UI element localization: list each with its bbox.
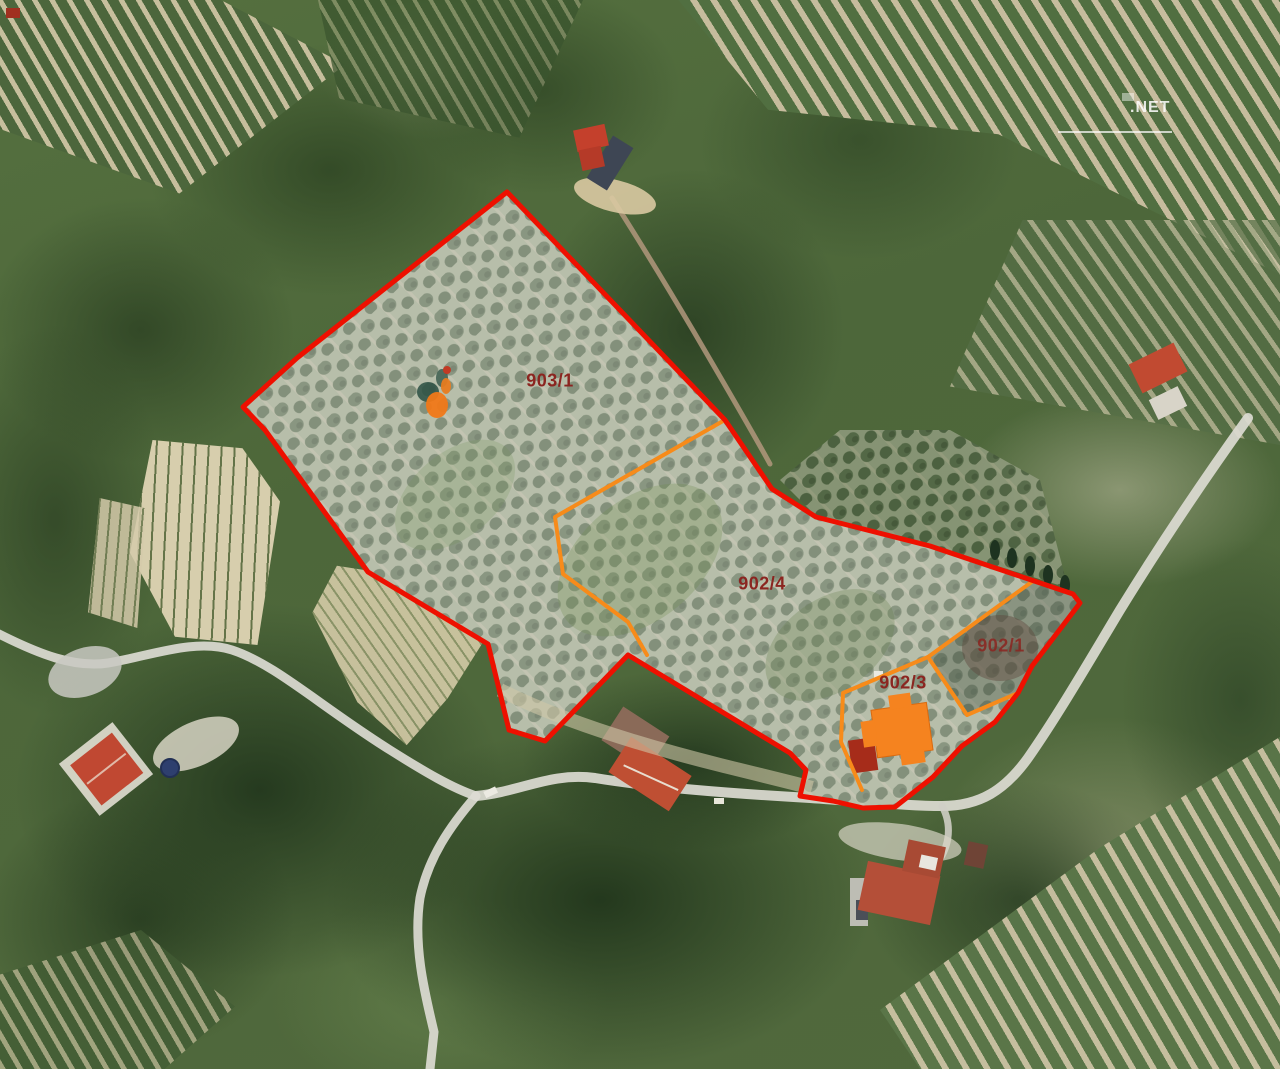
house-outbuilding <box>1149 386 1187 420</box>
satellite-map[interactable]: 903/1 902/4 902/1 902/3 .NET <box>0 0 1280 1069</box>
parcel-label-902-4: 902/4 <box>738 574 786 595</box>
parcel-label-902-1: 902/1 <box>977 636 1025 657</box>
watermark-text: .NET <box>1130 99 1170 117</box>
house-roof-red <box>1129 343 1188 394</box>
gravel-area <box>41 636 129 707</box>
watermark-line <box>1058 131 1172 133</box>
parcel-label-902-3: 902/3 <box>879 673 927 694</box>
car <box>714 798 724 804</box>
parcel-label-903-1: 903/1 <box>526 371 574 392</box>
yard-dirt <box>145 705 247 783</box>
shed <box>964 841 989 869</box>
map-overlay <box>0 0 1280 1069</box>
house-roof-corner <box>6 8 20 18</box>
yard-dirt <box>570 170 659 221</box>
pool <box>161 759 179 777</box>
road-south <box>418 796 476 1069</box>
